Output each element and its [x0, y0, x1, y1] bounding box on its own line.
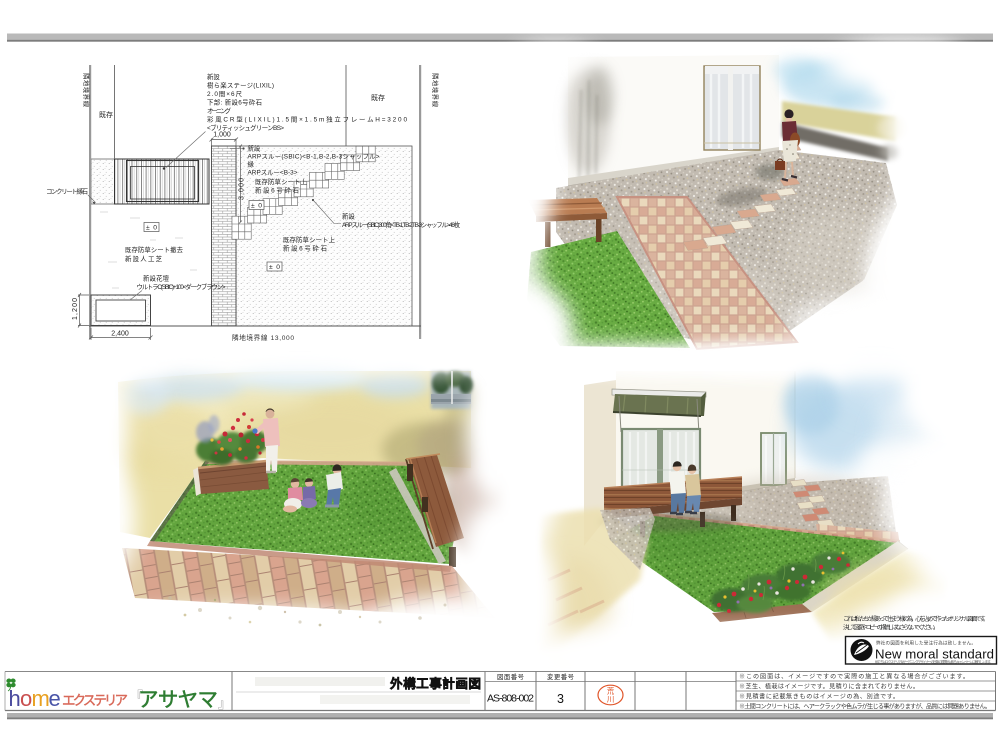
svg-text:隣地境界線 13,000: 隣地境界線 13,000	[232, 333, 294, 342]
svg-text:樹ら楽ステージ(LIXIL): 樹ら楽ステージ(LIXIL)	[207, 81, 274, 90]
svg-text:彩風CR型(LIXIL)1.5間×1.5m独立フレームH=3: 彩風CR型(LIXIL)1.5間×1.5m独立フレームH=3200	[207, 115, 407, 124]
svg-text:既存: 既存	[371, 93, 385, 102]
svg-text:ARPスルー(SBIC)<B-1,B-2,B-3シャッフル>: ARPスルー(SBIC)<B-1,B-2,B-3シャッフル>	[248, 153, 380, 161]
svg-text:e: e	[49, 686, 61, 711]
svg-text:2,400: 2,400	[111, 331, 129, 338]
svg-text:ARPスルー<B-3>: ARPスルー<B-3>	[248, 169, 298, 177]
svg-text:川: 川	[607, 695, 615, 704]
svg-text:3: 3	[557, 692, 564, 706]
svg-text:ARPスルー(SBIC)300角<TB-1,TB-2,TB-: ARPスルー(SBIC)300角<TB-1,TB-2,TB-3シャッフル>46枚	[342, 220, 461, 229]
svg-text:弊社の図面を利用した受注行為は致しません。: 弊社の図面を利用した受注行為は致しません。	[876, 640, 976, 647]
svg-text:』: 』	[218, 696, 231, 711]
svg-text:ウルトラC(SBIC)+100<ダークブラウン>: ウルトラC(SBIC)+100<ダークブラウン>	[137, 282, 226, 291]
svg-text:隣地境界線: 隣地境界線	[431, 73, 440, 108]
svg-text:m: m	[32, 686, 50, 711]
svg-text:外構工事計画図: 外構工事計画図	[390, 676, 481, 691]
svg-text:1,000: 1,000	[213, 132, 231, 139]
svg-text:<ブリティッシュグリーンBS>: <ブリティッシュグリーンBS>	[207, 123, 284, 132]
svg-text:既存: 既存	[99, 110, 113, 119]
svg-text:私たちはエクステリア&ガーデニングデザイナーの団体の提携針は: 私たちはエクステリア&ガーデニングデザイナーの団体の提携針は安もキャンペーンに著…	[875, 659, 993, 664]
svg-text:アサヤマ: アサヤマ	[138, 689, 218, 712]
svg-text:エクステリア: エクステリア	[62, 693, 128, 708]
svg-text:h: h	[9, 686, 21, 711]
svg-text:3,000: 3,000	[239, 178, 246, 200]
svg-text:図面番号: 図面番号	[497, 673, 524, 681]
svg-text:オーニング: オーニング	[207, 106, 232, 115]
svg-text:新設: 新設	[207, 72, 220, 81]
svg-text:新設: 新設	[342, 212, 355, 221]
svg-text:決して図面やコピーの横流しはなさらないでください。: 決して図面やコピーの横流しはなさらないでください。	[843, 624, 939, 632]
svg-text:新設人工芝: 新設人工芝	[125, 254, 163, 263]
svg-text:1,200: 1,200	[72, 298, 79, 320]
svg-text:既存防草シート上: 既存防草シート上	[283, 235, 336, 244]
svg-text:2.0間×6尺: 2.0間×6尺	[207, 90, 243, 98]
svg-text:※この図面は、イメージですので実際の施工と異なる場合がござい: ※この図面は、イメージですので実際の施工と異なる場合がございます。	[739, 673, 969, 681]
svg-text:o: o	[20, 686, 32, 711]
svg-text:新設: 新設	[248, 144, 261, 153]
svg-text:隣地境界線: 隣地境界線	[82, 73, 91, 108]
svg-text:コンクリート縁石: コンクリート縁石	[46, 187, 88, 196]
svg-text:既存防草シート上: 既存防草シート上	[255, 177, 308, 186]
svg-text:※芝生、植栽はイメージです。見積りに含まれておりません。: ※芝生、植栽はイメージです。見積りに含まれておりません。	[739, 683, 919, 691]
svg-text:※土間コンクリートには、ヘアークラックや色ムラが生じる事があ: ※土間コンクリートには、ヘアークラックや色ムラが生じる事がありますが、品質には問…	[739, 703, 991, 711]
svg-text:新設花壇: 新設花壇	[143, 274, 170, 283]
svg-text:※見積書に記載無きものはイメージの為、別途です。: ※見積書に記載無きものはイメージの為、別途です。	[739, 693, 899, 701]
svg-text:これは私たちが縁あって住まう様の為、心を込めて作ったオリジナ: これは私たちが縁あって住まう様の為、心を込めて作ったオリジナル図面です。	[843, 615, 989, 623]
svg-text:既存防草シート撤去: 既存防草シート撤去	[125, 245, 184, 254]
svg-text:縁: 縁	[248, 160, 255, 169]
svg-text:変更番号: 変更番号	[547, 672, 574, 681]
svg-text:下部: 新設6号砕石: 下部: 新設6号砕石	[207, 98, 262, 107]
svg-text:AS-808-002: AS-808-002	[487, 693, 534, 705]
